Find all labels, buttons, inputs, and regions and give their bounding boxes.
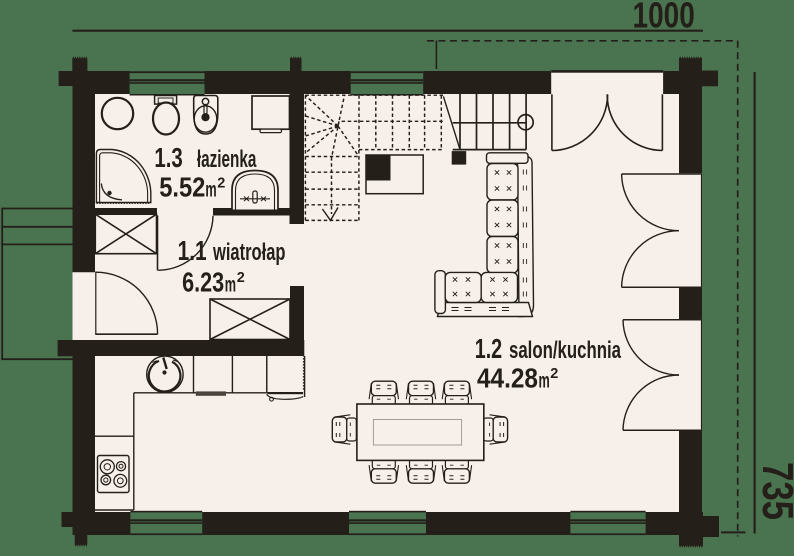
svg-text:2: 2 <box>237 270 245 286</box>
svg-text:salon/kuchnia: salon/kuchnia <box>509 337 621 364</box>
svg-text:1.1: 1.1 <box>178 235 207 266</box>
svg-text:735: 735 <box>753 462 794 520</box>
svg-text:m: m <box>225 273 236 296</box>
svg-text:1.2: 1.2 <box>475 333 503 364</box>
svg-text:1000: 1000 <box>633 0 695 35</box>
svg-text:5.52: 5.52 <box>159 172 205 203</box>
svg-text:wiatrołap: wiatrołap <box>212 239 285 266</box>
svg-text:m: m <box>539 369 550 392</box>
svg-text:44.28: 44.28 <box>477 362 538 393</box>
svg-text:m: m <box>205 179 216 202</box>
svg-text:łazienka: łazienka <box>197 146 257 173</box>
svg-text:2: 2 <box>217 176 225 192</box>
svg-text:6.23: 6.23 <box>182 266 224 297</box>
svg-text:2: 2 <box>550 366 558 382</box>
svg-text:1.3: 1.3 <box>154 142 182 173</box>
